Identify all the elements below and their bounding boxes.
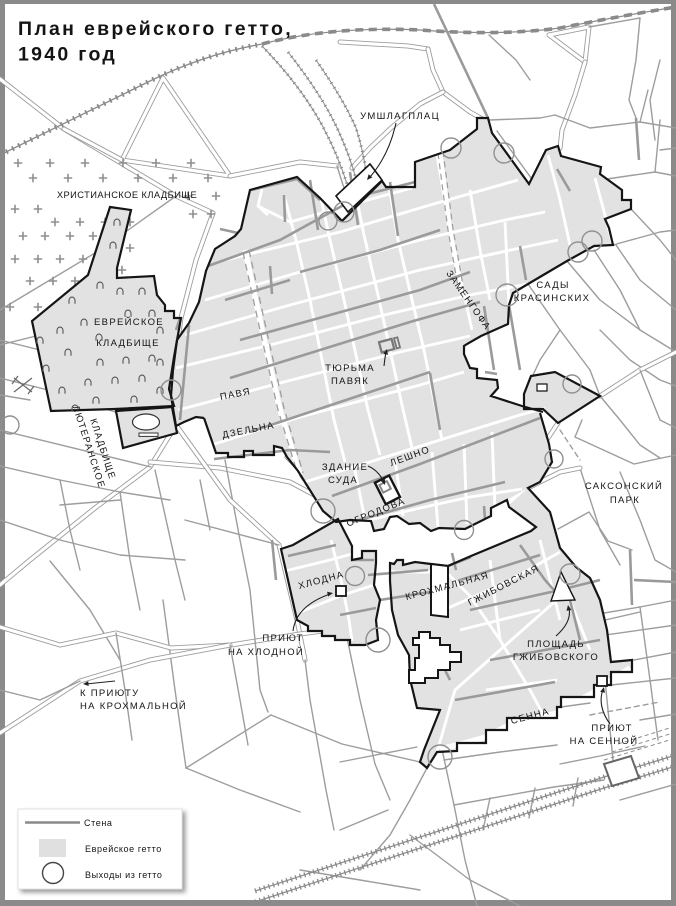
svg-text:НА СЕННОЙ: НА СЕННОЙ — [570, 735, 639, 747]
svg-text:ПАВЯК: ПАВЯК — [331, 376, 369, 387]
svg-text:К ПРИЮТУ: К ПРИЮТУ — [80, 688, 139, 699]
svg-text:Стена: Стена — [84, 818, 113, 828]
svg-text:КРАСИНСКИХ: КРАСИНСКИХ — [514, 293, 590, 304]
svg-text:ПАРК: ПАРК — [610, 495, 640, 506]
svg-text:План еврейского гетто,: План еврейского гетто, — [18, 18, 293, 40]
svg-text:ПРИЮТ: ПРИЮТ — [591, 723, 632, 734]
svg-text:САКСОНСКИЙ: САКСОНСКИЙ — [585, 480, 663, 492]
svg-text:Еврейское гетто: Еврейское гетто — [85, 844, 162, 854]
svg-text:САДЫ: САДЫ — [536, 280, 569, 291]
svg-text:КЛАДБИЩЕ: КЛАДБИЩЕ — [96, 338, 160, 349]
svg-text:ПЛОЩАДЬ: ПЛОЩАДЬ — [527, 639, 585, 650]
svg-text:СУДА: СУДА — [328, 475, 358, 486]
svg-text:ПРИЮТ: ПРИЮТ — [262, 633, 303, 644]
svg-text:НА ХЛОДНОЙ: НА ХЛОДНОЙ — [228, 646, 304, 658]
svg-text:УМШЛАГПЛАЦ: УМШЛАГПЛАЦ — [360, 111, 440, 122]
svg-text:ТЮРЬМА: ТЮРЬМА — [325, 363, 375, 374]
svg-text:ЕВРЕЙСКОЕ: ЕВРЕЙСКОЕ — [94, 316, 164, 328]
svg-text:ГЖИБОВСКОГО: ГЖИБОВСКОГО — [513, 652, 599, 663]
svg-text:НА КРОХМАЛЬНОЙ: НА КРОХМАЛЬНОЙ — [80, 700, 187, 712]
svg-text:ЗДАНИЕ: ЗДАНИЕ — [322, 462, 368, 473]
svg-text:1940 год: 1940 год — [18, 44, 117, 66]
svg-text:ХРИСТИАНСКОЕ КЛАДБИЩЕ: ХРИСТИАНСКОЕ КЛАДБИЩЕ — [57, 190, 197, 200]
svg-text:Выходы из гетто: Выходы из гетто — [85, 870, 163, 880]
